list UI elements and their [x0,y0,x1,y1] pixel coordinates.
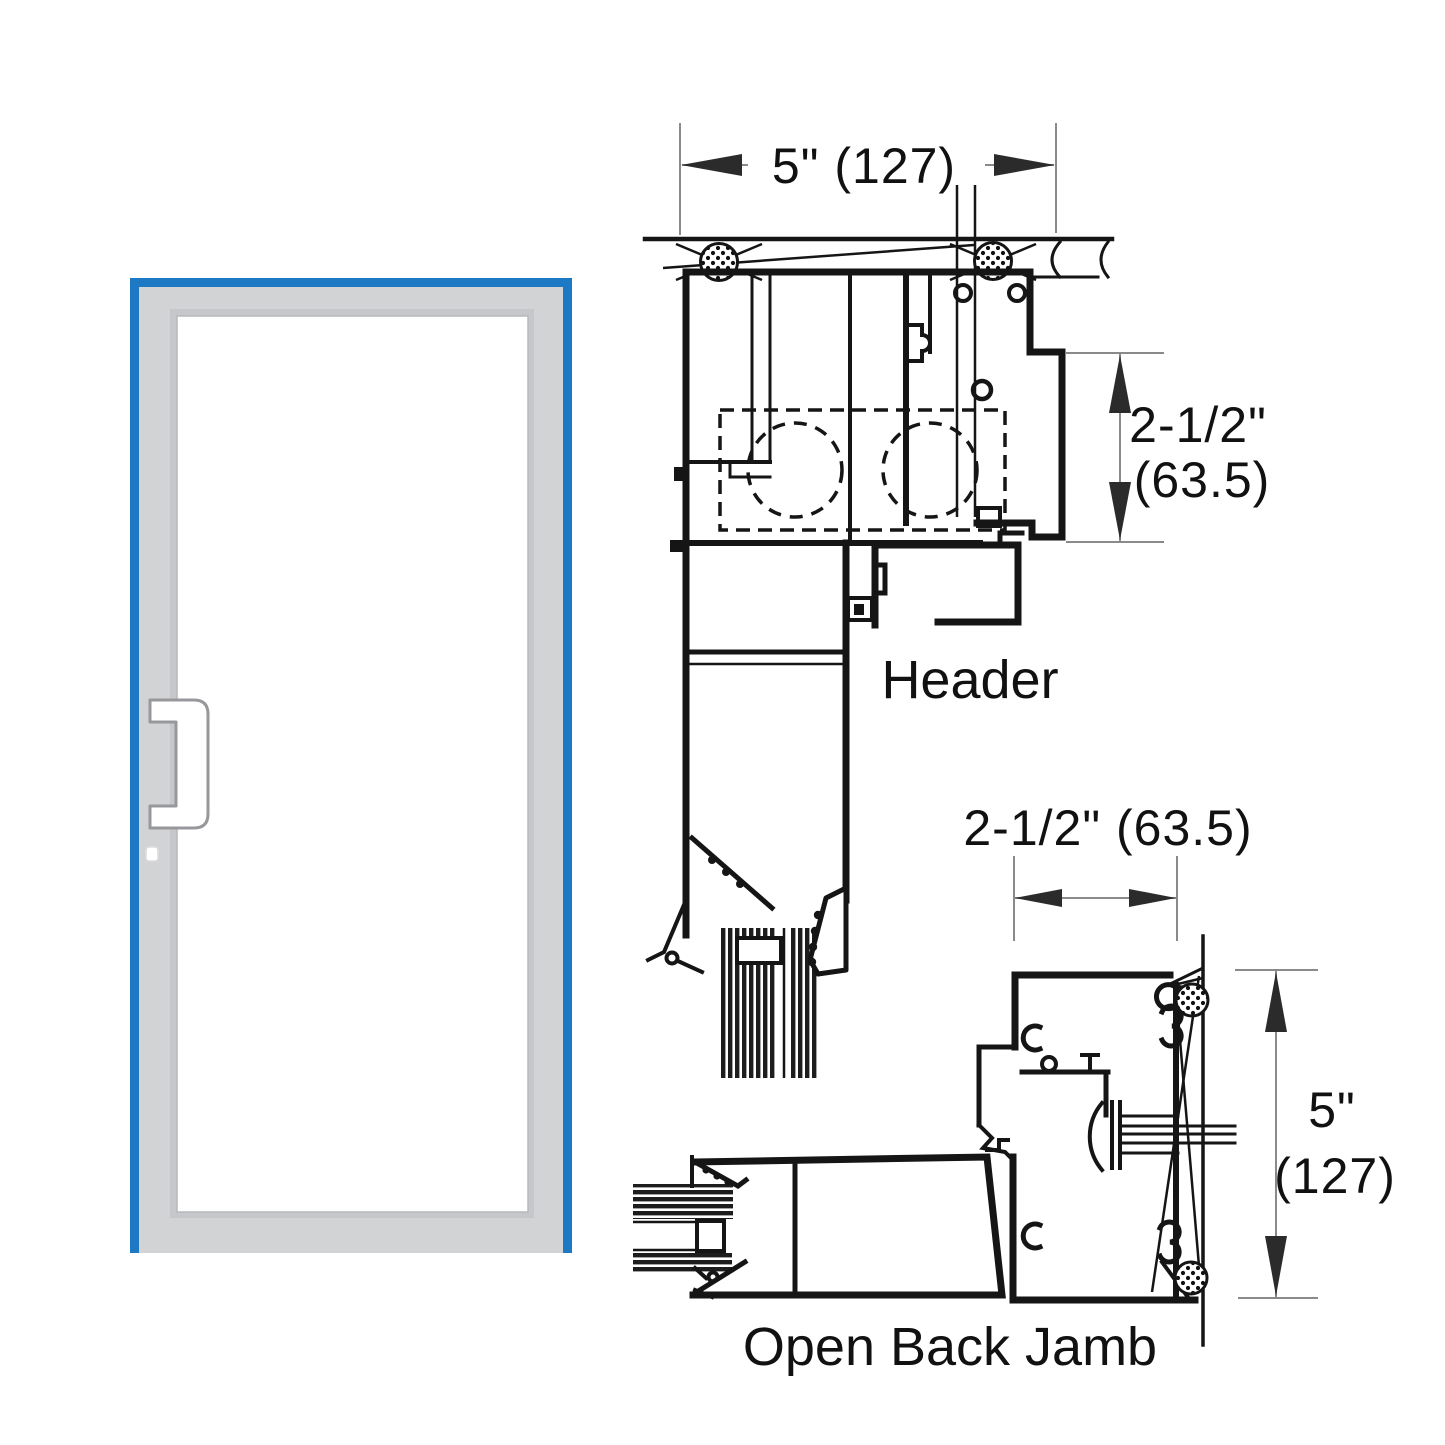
jamb-gasket-bottom [1175,1262,1207,1294]
header-height-dim: 2-1/2" (63.5) [1066,353,1270,542]
jamb-height-dim: 5" (127) [1235,970,1396,1298]
header-snap-trim [848,533,1022,625]
closer-pocket [720,410,1005,530]
glass-spacer [697,1221,724,1251]
door-stile [633,1140,1008,1297]
jamb-height-dim-text1: 5" [1308,1082,1356,1138]
diagram-page: 5" (127) 2-1/2" (63.5) Header [0,0,1445,1445]
door-glass [177,316,528,1212]
door-elevation [130,278,572,1253]
wall-break-symbol [1052,242,1060,277]
open-back-jamb-label: Open Back Jamb [743,1317,1157,1377]
header-glass-unit [719,928,818,1078]
glass-spacer [737,938,781,963]
header-width-dim-text: 5" (127) [772,138,956,194]
header-height-dim-text2: (63.5) [1134,452,1271,508]
jamb-width-dim: 2-1/2" (63.5) [963,800,1252,941]
header-height-dim-text1: 2-1/2" [1129,397,1267,453]
header-width-dim: 5" (127) [680,123,1056,235]
door-lock-indicator [146,847,158,861]
jamb-height-dim-text2: (127) [1274,1148,1396,1204]
jamb-gasket-top [1176,984,1208,1016]
sections-drawing: 5" (127) 2-1/2" (63.5) Header [0,0,1445,1445]
header-label: Header [881,650,1058,710]
door-top-rail [648,543,846,974]
jamb-width-dim-text: 2-1/2" (63.5) [963,800,1252,856]
